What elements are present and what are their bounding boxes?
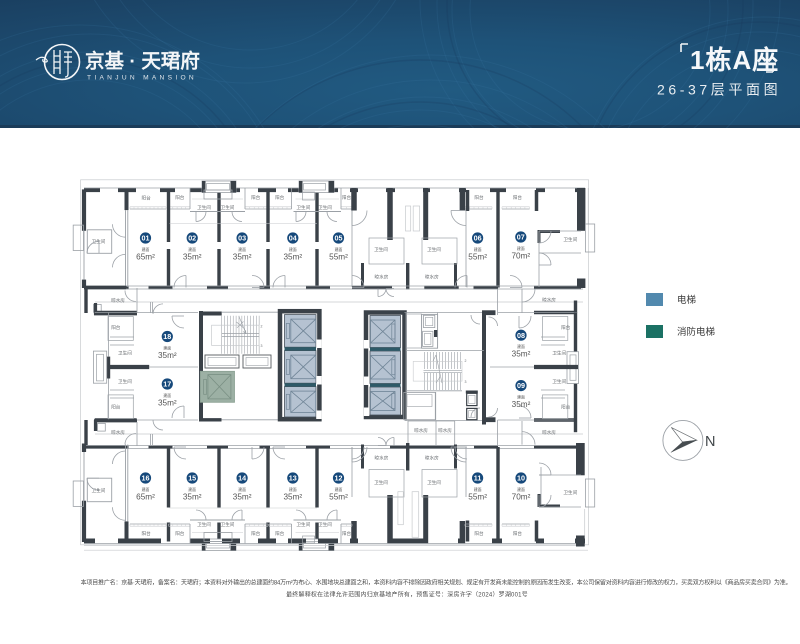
svg-text:阳台: 阳台 [561, 324, 571, 331]
svg-text:卫生间: 卫生间 [563, 236, 577, 243]
svg-text:18: 18 [163, 332, 171, 341]
svg-text:晾水房: 晾水房 [542, 429, 556, 436]
svg-text:07: 07 [517, 233, 525, 242]
svg-text:晾水房: 晾水房 [438, 427, 452, 434]
svg-text:65m²: 65m² [136, 493, 155, 502]
svg-text:卫生间: 卫生间 [427, 479, 441, 486]
svg-text:阳台: 阳台 [175, 530, 185, 537]
svg-text:65m²: 65m² [136, 253, 155, 262]
svg-text:阳台: 阳台 [251, 530, 261, 537]
svg-text:卫生间: 卫生间 [552, 378, 566, 385]
svg-text:35m²: 35m² [283, 253, 302, 262]
svg-text:建面: 建面 [142, 247, 150, 252]
svg-text:15: 15 [188, 474, 196, 483]
svg-text:建面: 建面 [289, 247, 297, 252]
svg-text:建面: 建面 [474, 247, 482, 252]
svg-text:14: 14 [238, 474, 246, 483]
svg-text:晾水房: 晾水房 [375, 455, 389, 462]
svg-text:阳台: 阳台 [513, 194, 523, 201]
svg-text:建面: 建面 [142, 487, 150, 492]
svg-text:建面: 建面 [517, 487, 525, 492]
svg-text:晾水房: 晾水房 [414, 427, 428, 434]
svg-text:35m²: 35m² [183, 253, 202, 262]
svg-text:卫生间: 卫生间 [197, 204, 211, 211]
svg-text:晾水房: 晾水房 [542, 297, 556, 304]
svg-text:建面: 建面 [188, 247, 196, 252]
svg-text:35m²: 35m² [512, 400, 531, 409]
svg-text:35m²: 35m² [283, 493, 302, 502]
svg-text:建面: 建面 [238, 487, 246, 492]
svg-text:TIANJUN MANSION: TIANJUN MANSION [87, 75, 197, 82]
svg-text:卫生间: 卫生间 [296, 521, 310, 528]
svg-text:09: 09 [517, 381, 525, 390]
svg-text:阳台: 阳台 [342, 530, 352, 537]
svg-text:晾水房: 晾水房 [111, 297, 125, 304]
svg-text:阳台: 阳台 [141, 530, 151, 537]
svg-text:建面: 建面 [238, 247, 246, 252]
svg-text:35m²: 35m² [233, 493, 252, 502]
svg-text:卫生间: 卫生间 [427, 246, 441, 253]
svg-text:阳台: 阳台 [275, 530, 285, 537]
svg-text:建面: 建面 [335, 247, 343, 252]
svg-text:05: 05 [335, 234, 343, 243]
svg-text:12: 12 [335, 474, 343, 483]
svg-text:阳台: 阳台 [111, 404, 121, 411]
svg-text:卫生间: 卫生间 [563, 489, 577, 496]
svg-text:55m²: 55m² [468, 253, 487, 262]
svg-text:卫生间: 卫生间 [118, 350, 132, 357]
svg-text:阳台: 阳台 [251, 194, 261, 201]
svg-text:阳台: 阳台 [141, 194, 151, 201]
svg-text:35m²: 35m² [158, 351, 177, 360]
svg-text:01: 01 [142, 234, 150, 243]
svg-text:11: 11 [474, 474, 482, 483]
svg-text:阳台: 阳台 [275, 194, 285, 201]
svg-text:2: 2 [465, 359, 467, 363]
svg-text:70m²: 70m² [512, 493, 531, 502]
svg-text:02: 02 [188, 234, 196, 243]
svg-text:本项目推广名：京基·天珺府，备案名：天珺府；本资料对外输出的: 本项目推广名：京基·天珺府，备案名：天珺府；本资料对外输出的总建面约84万m²为… [81, 579, 792, 587]
svg-text:35m²: 35m² [158, 399, 177, 408]
svg-text:晾水房: 晾水房 [375, 274, 389, 281]
svg-text:35m²: 35m² [183, 493, 202, 502]
svg-text:1栋A座: 1栋A座 [690, 45, 779, 75]
svg-text:阳台: 阳台 [561, 404, 571, 411]
svg-text:卫生间: 卫生间 [221, 204, 235, 211]
svg-text:08: 08 [517, 331, 525, 340]
svg-text:2: 2 [261, 325, 263, 329]
svg-text:3: 3 [261, 344, 263, 348]
svg-text:16: 16 [142, 474, 150, 483]
svg-text:卫生间: 卫生间 [197, 521, 211, 528]
svg-text:卫生间: 卫生间 [318, 204, 332, 211]
svg-text:京基 · 天珺府: 京基 · 天珺府 [85, 50, 200, 73]
svg-text:阳台: 阳台 [111, 324, 121, 331]
svg-text:卫生间: 卫生间 [374, 479, 388, 486]
svg-text:阳台: 阳台 [175, 194, 185, 201]
svg-text:17: 17 [163, 380, 171, 389]
svg-text:晾水房: 晾水房 [111, 429, 125, 436]
svg-text:卫生间: 卫生间 [221, 521, 235, 528]
svg-text:阳台: 阳台 [342, 194, 352, 201]
svg-text:卫生间: 卫生间 [552, 350, 566, 357]
svg-text:06: 06 [474, 234, 482, 243]
svg-text:阳台: 阳台 [513, 530, 523, 537]
svg-text:03: 03 [238, 234, 246, 243]
svg-text:10: 10 [517, 474, 525, 483]
svg-text:13: 13 [289, 474, 297, 483]
svg-text:消防电梯: 消防电梯 [677, 326, 716, 338]
svg-text:卫生间: 卫生间 [118, 378, 132, 385]
svg-text:卫生间: 卫生间 [318, 521, 332, 528]
svg-text:建面: 建面 [517, 344, 525, 349]
svg-text:建面: 建面 [188, 487, 196, 492]
svg-text:N: N [705, 434, 715, 450]
svg-text:建面: 建面 [289, 487, 297, 492]
svg-text:55m²: 55m² [329, 253, 348, 262]
svg-text:建面: 建面 [517, 246, 525, 251]
svg-text:最终解释权在法律允许范围内归京基地产所有，预售证号：深房许字: 最终解释权在法律允许范围内归京基地产所有，预售证号：深房许字（2024）罗湖00… [286, 591, 528, 599]
svg-text:建面: 建面 [335, 487, 343, 492]
svg-text:70m²: 70m² [511, 252, 530, 261]
svg-text:35m²: 35m² [233, 253, 252, 262]
svg-text:04: 04 [289, 234, 297, 243]
svg-text:电梯: 电梯 [677, 294, 697, 306]
svg-text:阳台: 阳台 [474, 194, 484, 201]
svg-text:55m²: 55m² [468, 493, 487, 502]
svg-text:晾水房: 晾水房 [425, 274, 439, 281]
svg-text:卫生间: 卫生间 [374, 246, 388, 253]
svg-text:卫生间: 卫生间 [296, 204, 310, 211]
svg-text:26-37层平面图: 26-37层平面图 [657, 82, 781, 98]
svg-text:55m²: 55m² [329, 493, 348, 502]
svg-text:建面: 建面 [163, 346, 171, 351]
svg-text:阳台: 阳台 [474, 530, 484, 537]
svg-text:晾水房: 晾水房 [425, 455, 439, 462]
svg-text:建面: 建面 [474, 487, 482, 492]
svg-text:建面: 建面 [517, 395, 525, 400]
svg-text:35m²: 35m² [512, 350, 531, 359]
svg-text:建面: 建面 [163, 393, 171, 398]
svg-text:3: 3 [465, 380, 467, 384]
